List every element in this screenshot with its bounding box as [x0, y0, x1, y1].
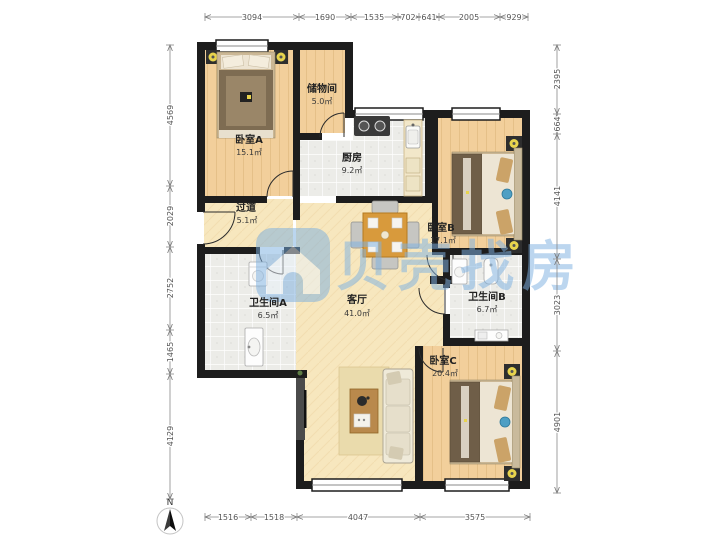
bedroom-a-window	[216, 40, 268, 52]
watermark-text: 贝壳找房	[336, 235, 584, 298]
dim-top-4: 702	[400, 13, 415, 22]
room-area-living-room: 41.0㎡	[344, 309, 370, 318]
room-area-bedroom-c: 20.4㎡	[432, 369, 458, 378]
dim-left-1: 4569	[166, 105, 175, 125]
bed-c-icon	[450, 364, 520, 481]
dim-top-3: 1535	[364, 13, 384, 22]
dim-top-1: 3094	[242, 13, 262, 22]
stove-icon	[354, 116, 390, 136]
room-area-kitchen: 9.2㎡	[342, 166, 363, 175]
room-label-kitchen: 厨房	[342, 151, 362, 164]
room-area-bathroom-a: 6.5㎡	[258, 311, 279, 320]
room-label-bathroom-a: 卫生间A	[249, 296, 287, 309]
dim-bottom-2: 1518	[264, 513, 284, 522]
floor-plan-drawing: 贝壳找房 卧室A 15.1㎡ 储物间 5.0㎡ 厨房 9.2㎡ 卧室B 17.1…	[0, 0, 720, 540]
room-label-bedroom-b: 卧室B	[427, 221, 455, 234]
bedroom-b-window	[452, 108, 500, 120]
vanity-a-icon	[245, 328, 263, 366]
room-area-bathroom-b: 6.7㎡	[477, 305, 498, 314]
bedroom-c-window	[445, 479, 509, 491]
room-label-bedroom-a: 卧室A	[235, 133, 263, 146]
north-label: N	[167, 498, 174, 508]
room-label-hallway: 过道	[236, 201, 256, 214]
coffee-table-icon	[350, 389, 378, 433]
tv-stand-icon	[296, 371, 307, 441]
dim-right-1: 2395	[553, 69, 562, 89]
dim-right-4: 3023	[553, 295, 562, 315]
dim-right-3: 4141	[553, 186, 562, 206]
dim-top-5: 641	[421, 13, 436, 22]
kitchen-counter	[404, 120, 422, 196]
dim-left-4: 1465	[166, 342, 175, 362]
watermark: 贝壳找房	[256, 228, 584, 302]
dim-right-2: 664	[553, 116, 562, 131]
room-area-bedroom-b: 17.1㎡	[430, 236, 456, 245]
dim-left-5: 4129	[166, 426, 175, 446]
room-area-bedroom-a: 15.1㎡	[236, 148, 262, 157]
dim-right-5: 4901	[553, 412, 562, 432]
room-area-storage: 5.0㎡	[312, 97, 333, 106]
beike-house-logo-icon	[256, 228, 330, 302]
sink-icon	[406, 124, 420, 149]
room-label-living-room: 客厅	[346, 293, 367, 306]
dim-left-2: 2029	[166, 206, 175, 226]
dim-bottom-4: 3575	[465, 513, 485, 522]
room-area-hallway: 5.1㎡	[237, 216, 258, 225]
room-label-bathroom-b: 卫生间B	[468, 290, 506, 303]
dim-left-3: 2752	[166, 278, 175, 298]
compass: N	[157, 498, 183, 534]
dim-top-6: 2005	[459, 13, 479, 22]
dim-top-7: 929	[506, 13, 521, 22]
room-label-storage: 储物间	[306, 82, 337, 95]
room-label-bedroom-c: 卧室C	[429, 354, 456, 367]
dim-bottom-1: 1516	[218, 513, 238, 522]
living-room-window	[312, 479, 402, 491]
sofa-icon	[383, 369, 413, 463]
dim-top-2: 1690	[315, 13, 335, 22]
vanity-b-icon	[475, 330, 508, 341]
floor-plan-page: 贝壳找房 卧室A 15.1㎡ 储物间 5.0㎡ 厨房 9.2㎡ 卧室B 17.1…	[0, 0, 720, 540]
dim-bottom-3: 4047	[348, 513, 368, 522]
